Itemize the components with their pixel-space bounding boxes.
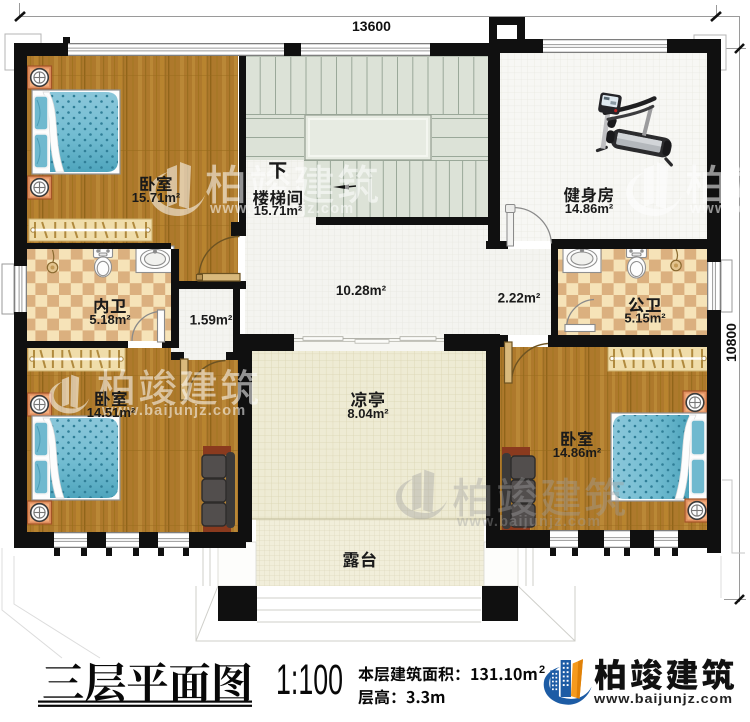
svg-text:15.71m²: 15.71m² bbox=[254, 203, 303, 218]
svg-text:5.15m²: 5.15m² bbox=[624, 311, 666, 326]
svg-text:10800: 10800 bbox=[723, 323, 739, 362]
svg-text:13600: 13600 bbox=[352, 18, 391, 34]
svg-text:8.04m²: 8.04m² bbox=[347, 406, 389, 421]
svg-text:www.baijunjz.com: www.baijunjz.com bbox=[593, 692, 733, 706]
svg-text:10.28m²: 10.28m² bbox=[336, 283, 387, 298]
svg-text:5.18m²: 5.18m² bbox=[89, 312, 131, 327]
svg-text:14.51m²: 14.51m² bbox=[87, 405, 136, 420]
svg-text:15.71m²: 15.71m² bbox=[132, 190, 181, 205]
svg-text:2: 2 bbox=[539, 664, 545, 676]
svg-text:14.86m²: 14.86m² bbox=[565, 201, 614, 216]
svg-text:www.baijunjz.com: www.baijunjz.com bbox=[689, 201, 750, 217]
svg-text:2.22m²: 2.22m² bbox=[498, 291, 541, 306]
svg-text:www.baijunjz.com: www.baijunjz.com bbox=[456, 514, 601, 530]
svg-text:14.86m²: 14.86m² bbox=[553, 445, 602, 460]
svg-text:1:100: 1:100 bbox=[276, 656, 343, 704]
svg-text:1.59m²: 1.59m² bbox=[190, 313, 233, 328]
